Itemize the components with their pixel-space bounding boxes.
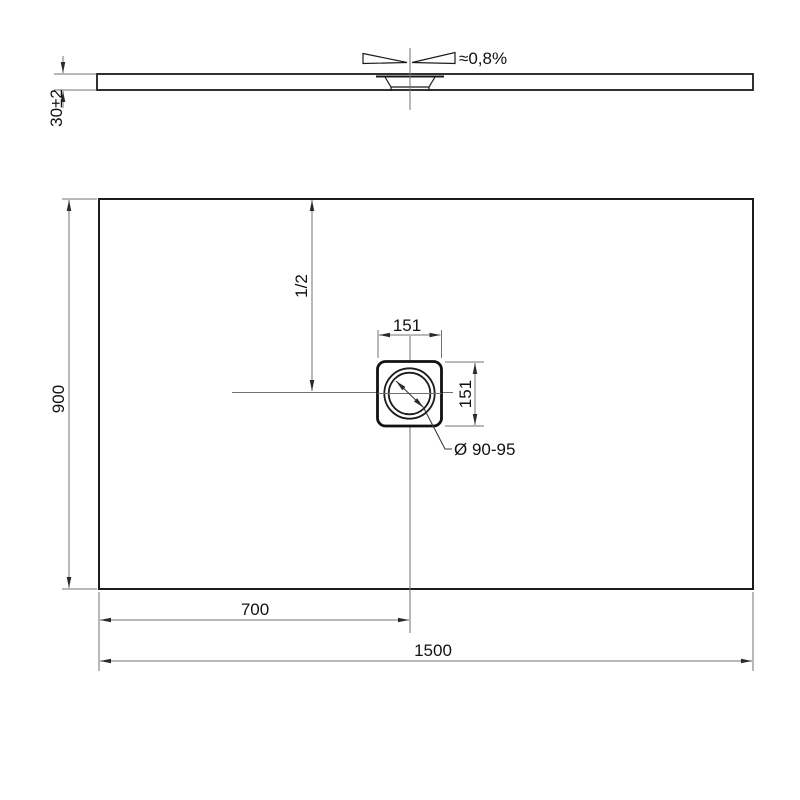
slope-triangles-icon: [363, 53, 455, 64]
drain-offset-dimension: 700: [100, 600, 409, 620]
plan-view: 900 1/2 151 151: [49, 199, 753, 671]
depth-dimension: 900: [49, 199, 97, 589]
drain-height-label: 151: [456, 380, 475, 408]
half-center-dimension: 1/2: [292, 200, 312, 391]
overall-width-label: 1500: [414, 641, 452, 660]
technical-drawing-page: ≈0,8% 30±2 900 1/2: [0, 0, 800, 800]
depth-label: 900: [49, 385, 68, 413]
overall-width-dimension: 1500: [100, 641, 752, 661]
drain-diameter-label: Ø 90-95: [454, 440, 515, 459]
drain-offset-label: 700: [241, 600, 269, 619]
thickness-dimension: 30±2: [47, 56, 96, 127]
drain-width-label: 151: [393, 316, 421, 335]
slope-triangle-left: [363, 54, 407, 64]
half-center-label: 1/2: [292, 274, 311, 298]
slope-label: ≈0,8%: [459, 49, 507, 68]
drawing-canvas: ≈0,8% 30±2 900 1/2: [0, 0, 800, 800]
drain-height-dimension: 151: [445, 362, 484, 426]
slope-triangle-right: [412, 53, 455, 64]
side-view: ≈0,8% 30±2: [47, 48, 753, 127]
thickness-label: 30±2: [47, 89, 66, 127]
